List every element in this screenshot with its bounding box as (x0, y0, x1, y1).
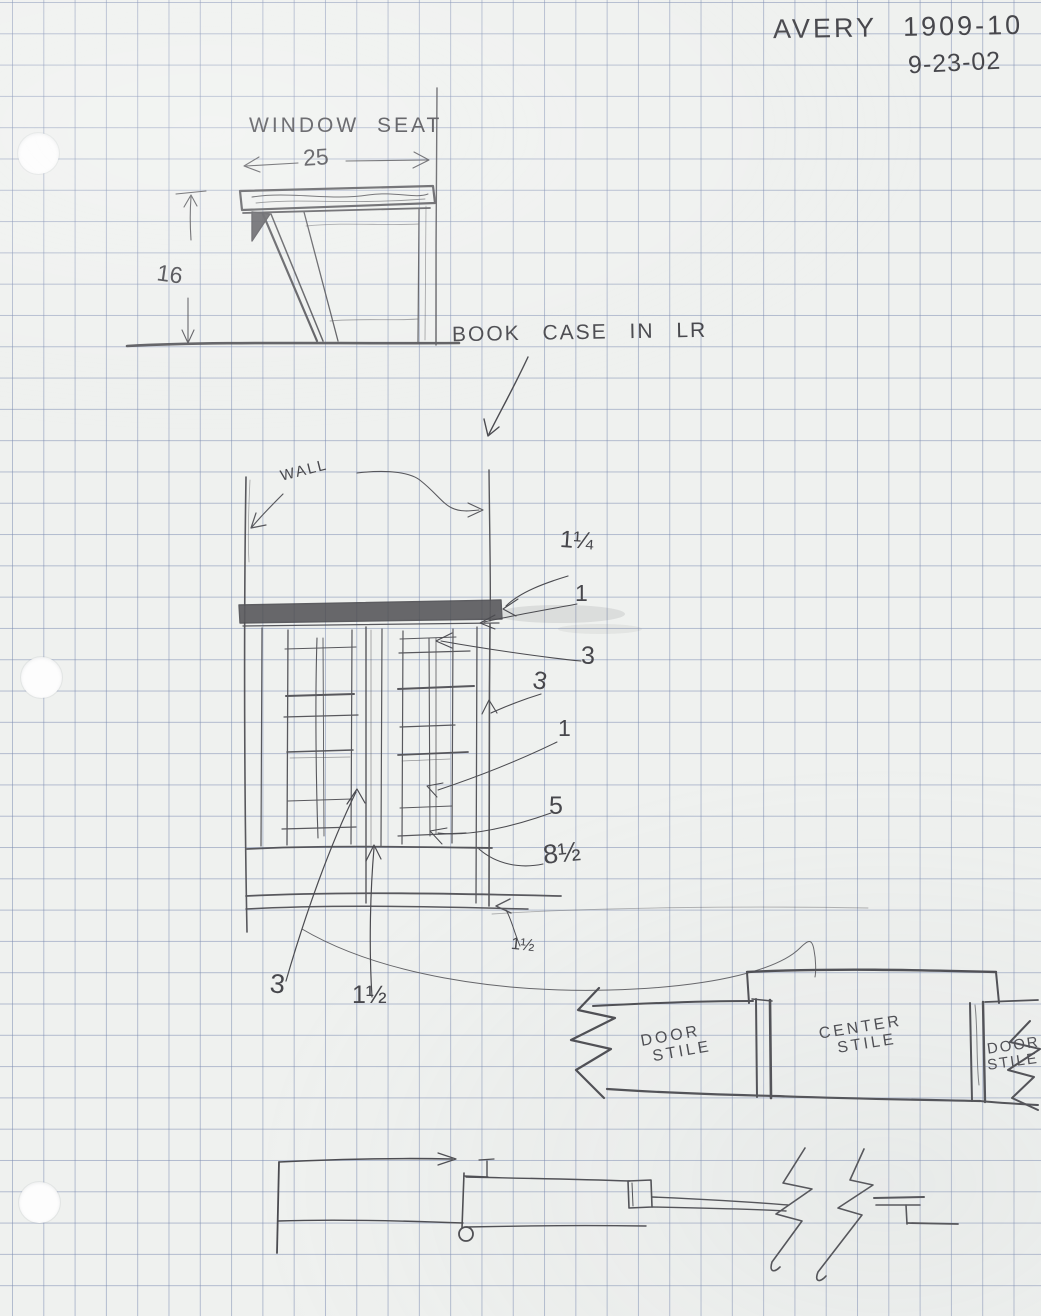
bookcase-drawing (239, 470, 642, 932)
graph-paper-sheet: AVERY 1909-10 9-23-02 WINDOW SEAT 25 16 … (0, 0, 1041, 1316)
hole-punch-bottom (19, 1182, 60, 1223)
dimension-leaders (286, 576, 868, 997)
pencil-sketch-strokes (0, 0, 1041, 1316)
rail-plan-drawing (277, 1148, 958, 1281)
stile-plan-drawing (571, 970, 1040, 1110)
hole-punch-middle (21, 657, 62, 698)
window-seat-drawing (127, 88, 459, 346)
hole-punch-top (18, 133, 59, 174)
bookcase-label-arrow (484, 357, 528, 436)
